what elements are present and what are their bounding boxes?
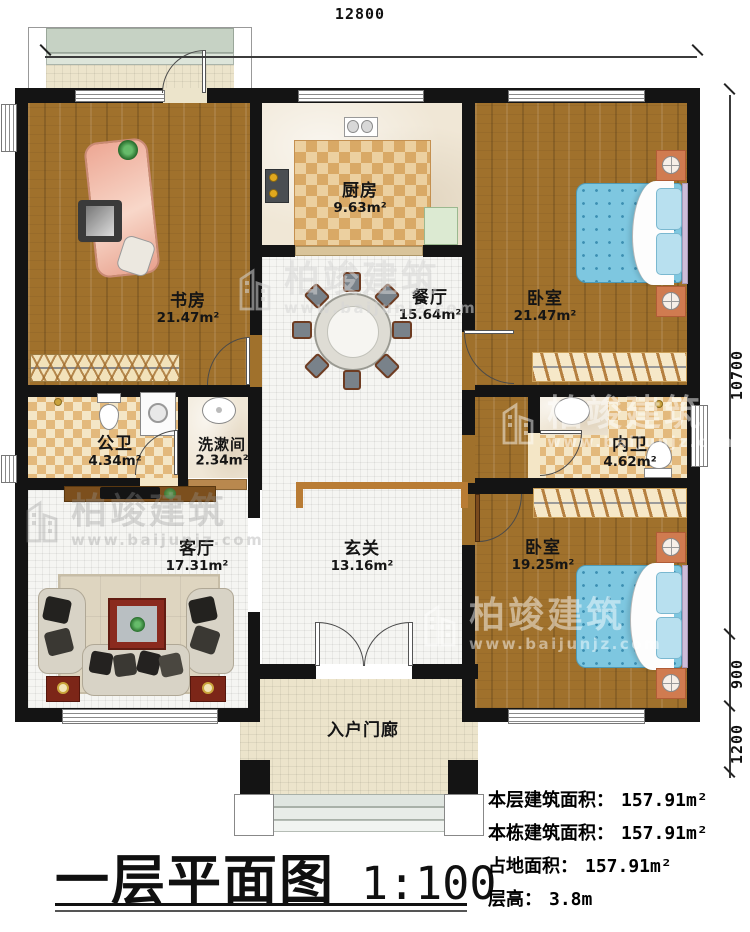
living-south-window [62,709,218,724]
pull-light [54,398,62,406]
living-area: 17.31m² [166,559,229,574]
washroom-area: 2.34m² [195,453,248,468]
stat-storey-height-label: 层高： [488,885,542,911]
kitchen-north-window [298,90,424,102]
stat-floor-area-label: 本层建筑面积： [488,786,614,812]
wall-living-east-bottom [248,612,260,708]
porch-pillar-right [448,760,478,794]
coffee-table-plant [130,617,145,632]
wall-private-bath-west [528,393,540,433]
bedroom2-name: 卧室 [512,539,575,558]
study-north-window [75,90,165,102]
bedroom2-south-window [508,709,645,724]
nightstand-lamp [662,538,680,556]
private-bath-name: 内卫 [603,436,656,455]
monitor-screen [86,206,114,236]
study-west-window [1,104,17,152]
foyer-label: 玄关 13.16m² [331,540,394,574]
bed-pillow [656,188,682,230]
title-underline-thin [55,910,467,912]
private-bath-label: 内卫 4.62m² [603,436,656,470]
study-door-opening [250,335,262,387]
foyer-area: 13.16m² [331,559,394,574]
washroom-label: 洗漱间 2.34m² [195,436,248,467]
stove-burner-1 [269,173,278,182]
bedroom1-door-leaf [464,330,514,334]
living-label: 客厅 17.31m² [166,540,229,574]
console-table [296,482,468,508]
kitchen-sink-basin-2 [361,120,373,133]
dining-chair [392,321,412,339]
bedroom2-wardrobe [533,488,687,518]
public-bath-label: 公卫 4.34m² [88,435,141,469]
stat-building-area-label: 本栋建筑面积： [488,819,614,845]
study-name: 书房 [157,292,220,311]
dim-line-top [45,56,697,58]
kitchen-name: 厨房 [333,182,386,201]
dim-width-top: 12800 [335,5,385,23]
public-bath-name: 公卫 [88,435,141,454]
nightstand-lamp [662,156,680,174]
wall-kitchen-south-2 [423,245,475,257]
stat-land-area-label: 占地面积： [488,852,578,878]
private-bath-sink [554,397,590,425]
bedroom1-wardrobe [532,352,687,382]
study-door-leaf [246,337,250,385]
wall-bath-north [15,385,262,397]
wall-bedroom1-south [475,385,700,397]
wall-left [15,88,28,722]
bed-headboard [682,565,688,668]
public-bath-door-leaf [174,430,178,475]
wall-dining-east-2 [462,390,475,435]
study-area: 21.47m² [157,311,220,326]
dim-tick [691,44,703,56]
cutting-board [424,207,458,245]
porch-step-2 [268,807,450,820]
porch-label: 入户门廊 [327,722,399,741]
nightstand-lamp [662,292,680,310]
porch-pillar-base-left [234,794,274,836]
kitchen-area: 9.63m² [333,201,386,216]
dining-area: 15.64m² [399,308,462,323]
porch-step-1 [268,794,450,807]
stat-storey-height: 层高： 3.8m [488,885,708,918]
stat-land-area-value: 157.91m² [585,856,672,877]
title-underline-thick [55,903,467,906]
stat-land-area: 占地面积： 157.91m² [488,852,708,885]
stat-storey-height-value: 3.8m [549,889,592,910]
hallway-opening [462,435,475,483]
dining-label: 餐厅 15.64m² [399,289,462,323]
entry-door-sill [316,666,412,679]
private-bath-door-leaf [540,430,582,434]
end-table-lamp [202,682,214,694]
dining-chair [343,370,361,390]
bedroom2-area: 19.25m² [512,558,575,573]
public-bath-area: 4.34m² [88,454,141,469]
porch-step-3 [268,820,450,832]
floor-plan: 书房 21.47m² 厨房 9.63m² 餐厅 15.64m² 卧室 21.47… [0,0,750,932]
dining-chair [343,272,361,292]
stat-floor-area-value: 157.91m² [621,790,708,811]
bed-headboard [682,183,688,284]
sofa-pillow [158,652,184,678]
dim-height-step: 900 [728,634,746,714]
dining-name: 餐厅 [399,289,462,308]
dim-height-main: 10700 [728,335,746,415]
bed-pillow [656,572,682,614]
sofa-pillow [42,596,72,625]
dining-table-top [327,306,379,358]
sofa-pillow [113,653,138,678]
wall-washroom-east [248,387,262,490]
stat-building-area-value: 157.91m² [621,823,708,844]
wall-foyer-east [462,545,475,708]
stats-block: 本层建筑面积： 157.91m² 本栋建筑面积： 157.91m² 占地面积： … [488,786,708,918]
bedroom2-label: 卧室 19.25m² [512,539,575,573]
bed-pillow [656,617,682,659]
entry-door-leaf-left [315,622,320,666]
living-name: 客厅 [166,540,229,559]
tv [100,487,160,499]
wall-dining-east-1 [462,88,475,332]
porch-pillar-base-right [444,794,484,836]
toilet [97,393,121,403]
wall-living-east-top [248,490,260,518]
wall-study-east [250,88,262,335]
kitchen-pass-counter [295,246,423,256]
private-bath-east-window [691,405,708,467]
bedroom2-door-leaf [475,494,480,542]
end-table-lamp [57,682,69,694]
bedroom1-name: 卧室 [514,290,577,309]
bedroom1-area: 21.47m² [514,309,577,324]
foyer-name: 玄关 [331,540,394,559]
dim-tick [723,83,735,95]
bedroom1-north-window [508,90,645,102]
bed-pillow [656,233,682,275]
private-bath-area: 4.62m² [603,455,656,470]
stat-building-area: 本栋建筑面积： 157.91m² [488,819,708,852]
dining-chair [292,321,312,339]
stove-burner-2 [269,189,278,198]
porch-name: 入户门廊 [327,722,399,741]
kitchen-sink-basin-1 [347,120,359,133]
entry-door-leaf-right [408,622,413,666]
wall-bath-separator [178,393,188,478]
kitchen-label: 厨房 9.63m² [333,182,386,216]
desk-plant [118,140,138,160]
tv-plant [164,488,176,499]
dim-height-porch: 1200 [728,704,746,784]
washing-machine-door [148,403,168,423]
washroom-name: 洗漱间 [195,436,248,453]
study-label: 书房 21.47m² [157,292,220,326]
sofa-pillow [88,650,113,675]
wall-kitchen-south-1 [250,245,295,257]
stat-floor-area: 本层建筑面积： 157.91m² [488,786,708,819]
nightstand-lamp [662,674,680,692]
private-bath-door-opening [528,433,540,478]
washroom-sink-drain [216,407,222,413]
study-cabinet [30,354,180,382]
bath-west-window [1,455,17,483]
porch-pillar-left [240,760,270,794]
pull-light [655,400,663,408]
bedroom1-label: 卧室 21.47m² [514,290,577,324]
